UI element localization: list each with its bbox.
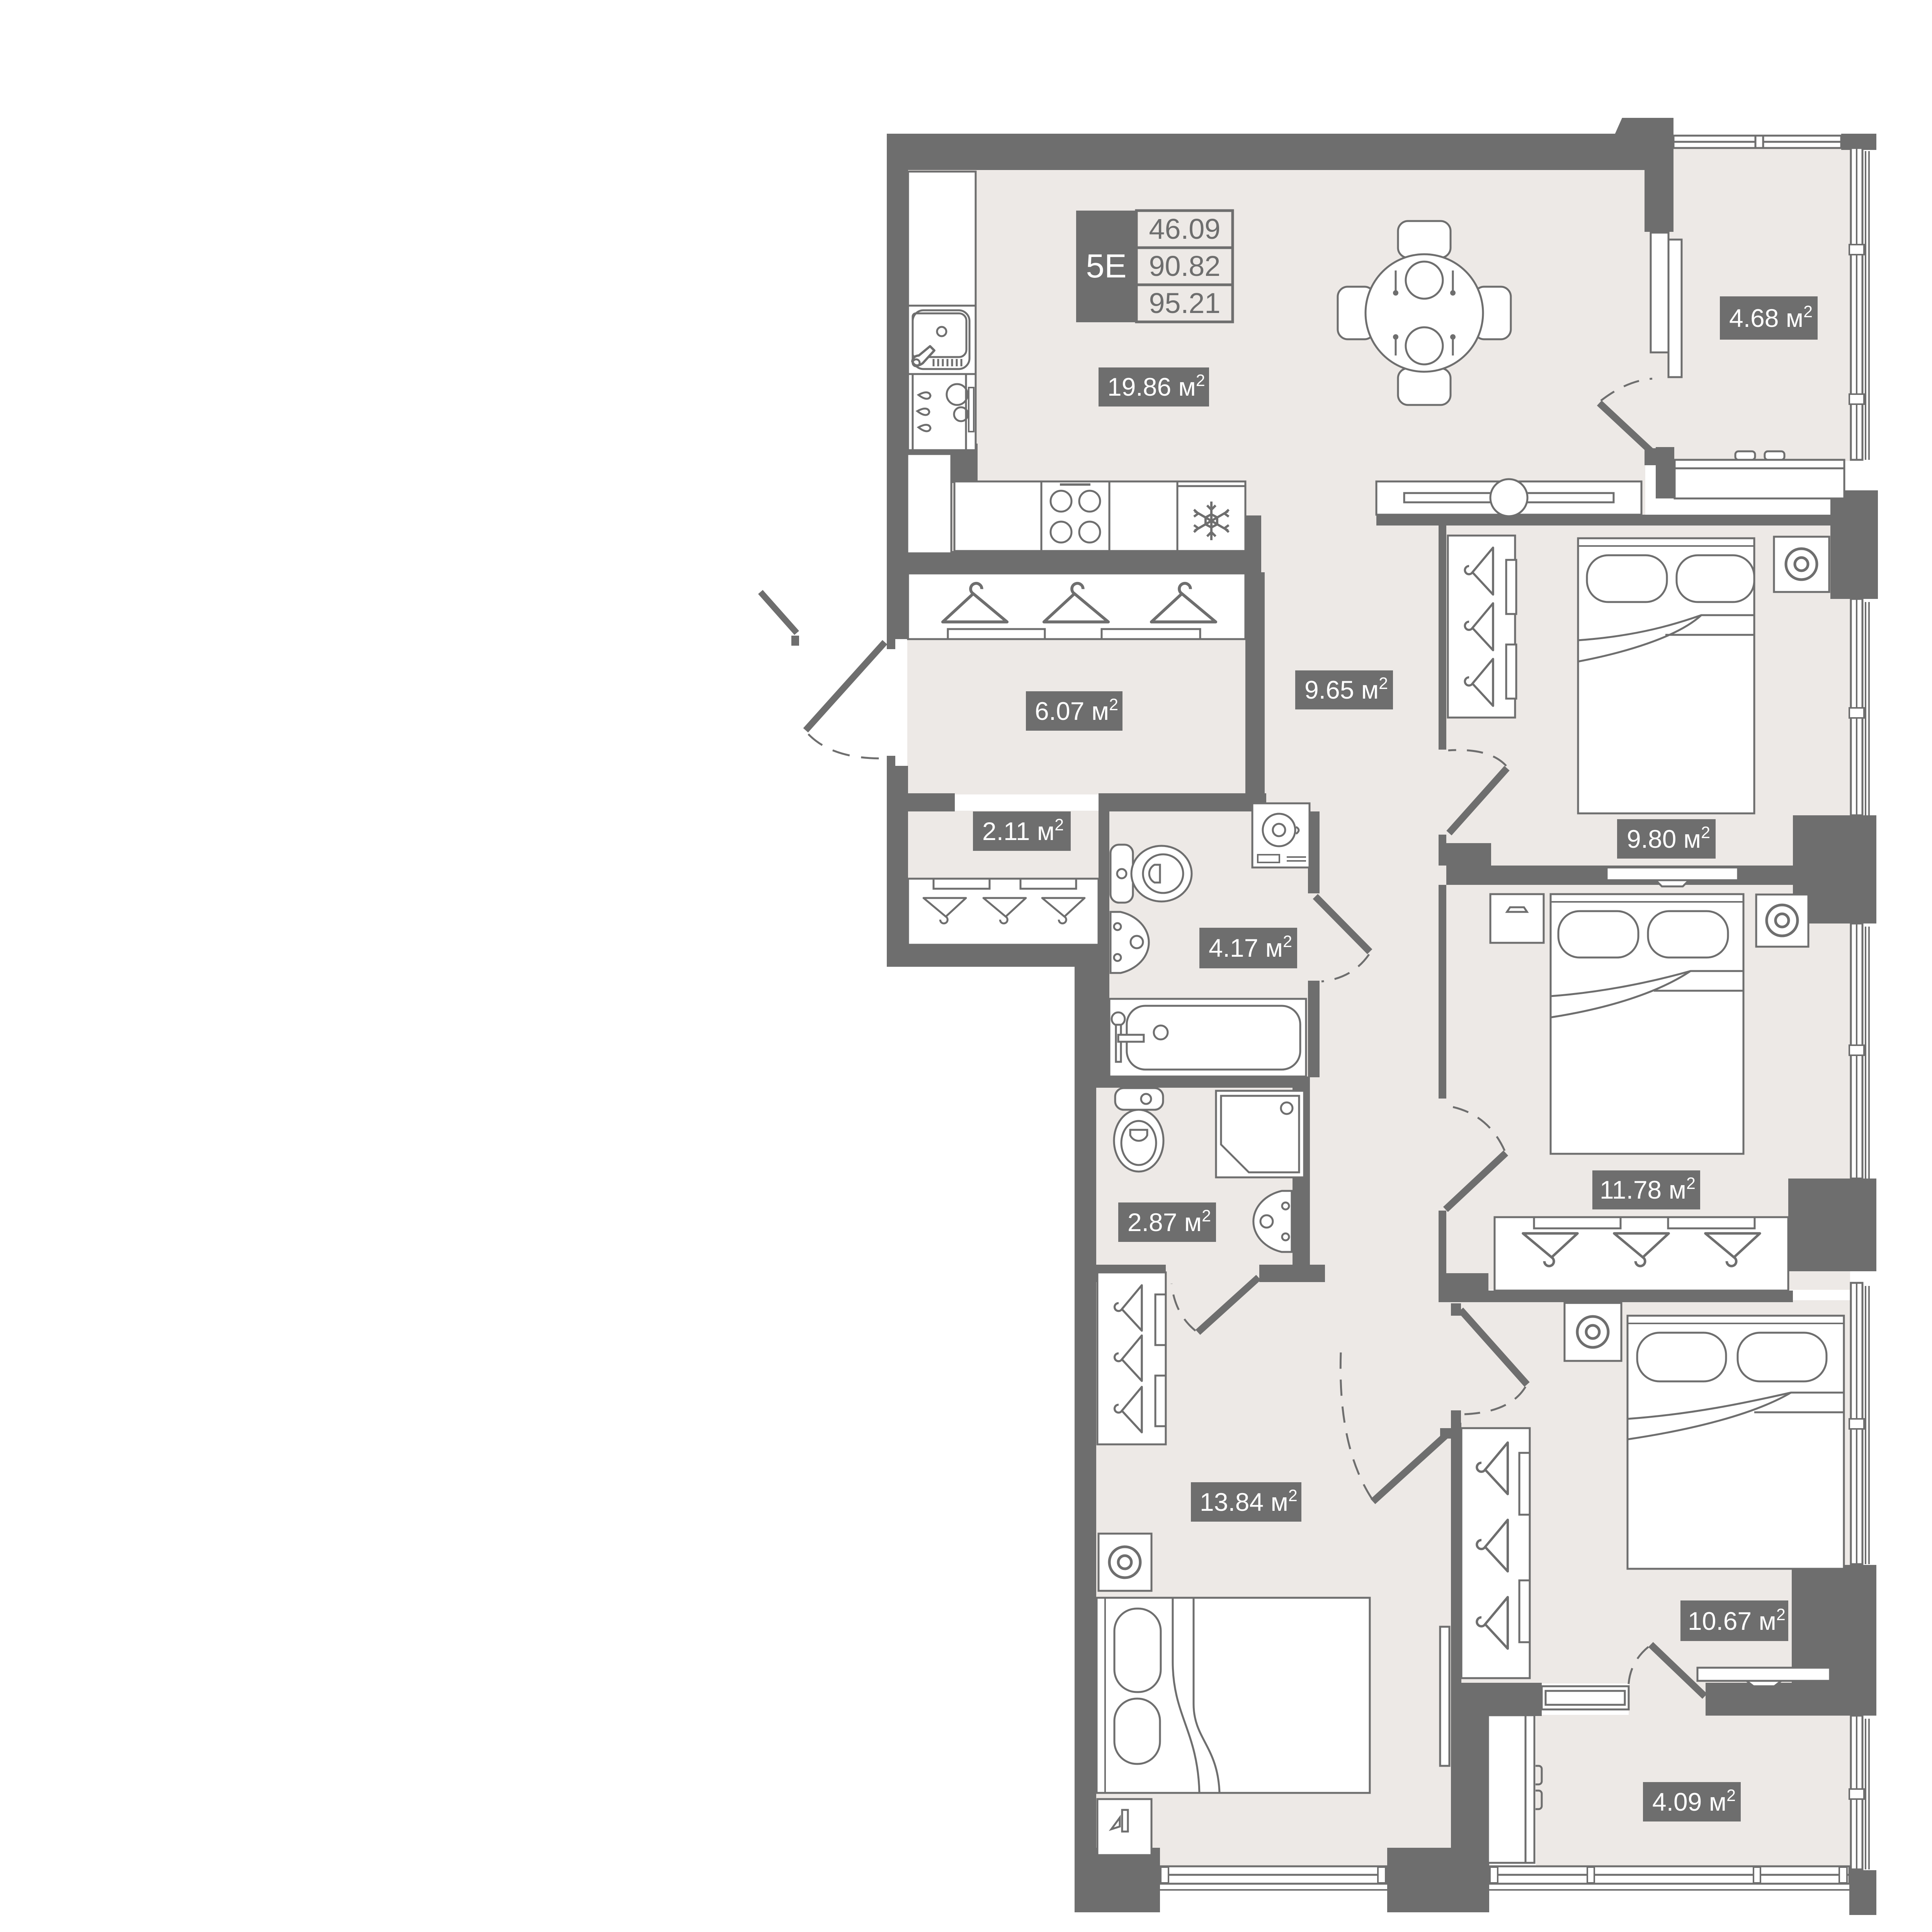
svg-text:10.67 м2: 10.67 м2: [1688, 1605, 1786, 1635]
svg-text:4.68 м2: 4.68 м2: [1729, 303, 1813, 332]
svg-text:4.17 м2: 4.17 м2: [1209, 932, 1292, 962]
svg-text:90.82: 90.82: [1149, 250, 1220, 282]
svg-text:6.07 м2: 6.07 м2: [1035, 696, 1118, 725]
svg-text:2.11 м2: 2.11 м2: [982, 816, 1064, 845]
svg-text:5E: 5E: [1086, 248, 1126, 285]
svg-text:46.09: 46.09: [1149, 213, 1220, 245]
svg-text:9.65 м2: 9.65 м2: [1304, 674, 1388, 704]
svg-text:11.78 м2: 11.78 м2: [1600, 1174, 1696, 1204]
svg-text:4.09 м2: 4.09 м2: [1652, 1786, 1736, 1816]
svg-text:19.86 м2: 19.86 м2: [1107, 371, 1205, 401]
svg-text:13.84 м2: 13.84 м2: [1200, 1486, 1298, 1516]
svg-text:9.80 м2: 9.80 м2: [1627, 823, 1710, 853]
svg-text:2.87 м2: 2.87 м2: [1128, 1207, 1211, 1236]
svg-text:95.21: 95.21: [1149, 287, 1220, 319]
